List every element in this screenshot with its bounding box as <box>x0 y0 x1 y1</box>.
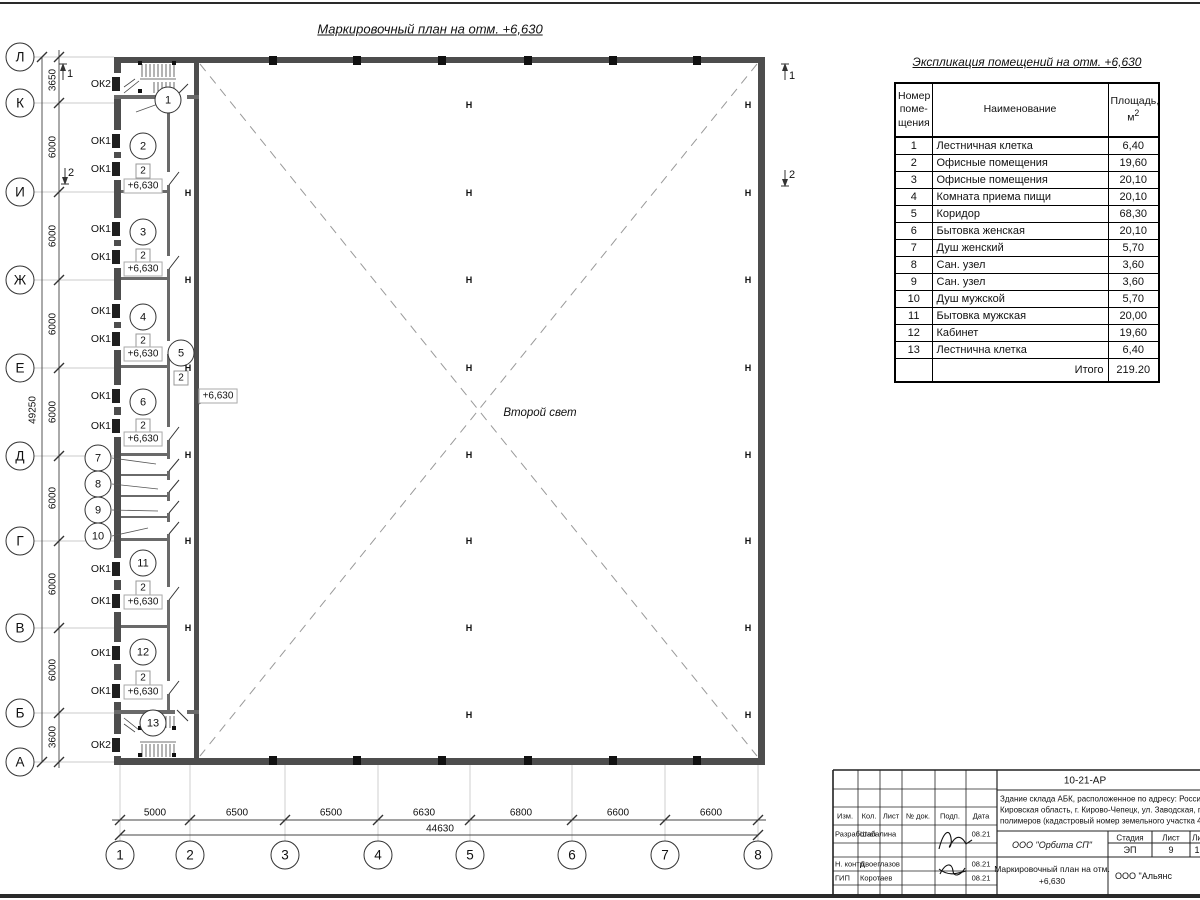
dimension-label: 3650 <box>48 69 59 91</box>
steel-column-mark: Н <box>745 536 752 546</box>
dimension-label: 6000 <box>48 487 59 509</box>
explication-body: 1 Лестничная клетка 6,40 2 Офисные помещ… <box>895 137 1159 359</box>
axis-bubble-left: А <box>6 748 35 777</box>
room-number-bubble: 2 <box>130 133 157 160</box>
sheets-value: 1 <box>1194 845 1199 855</box>
explication-header-row: Номерпоме-щения Наименование Площадь,м2 <box>895 83 1159 137</box>
address-line: полимеров (кадастровый номер земельного … <box>1000 817 1200 826</box>
axis-bubble-left: Ж <box>6 266 35 295</box>
door-openings <box>166 172 171 694</box>
room-area-cell: 3,60 <box>1108 274 1159 291</box>
explication-row: 11 Бытовка мужская 20,00 <box>895 308 1159 325</box>
axis-bubble-left: К <box>6 89 35 118</box>
axis-bubble-left: Е <box>6 354 35 383</box>
room-number-cell: 8 <box>895 257 932 274</box>
dimension-label: 6000 <box>48 136 59 158</box>
axis-bubble-left: Б <box>6 699 35 728</box>
header-area: Площадь,м2 <box>1108 83 1159 137</box>
room-number-cell: 3 <box>895 172 932 189</box>
dimension-label: 6000 <box>48 659 59 681</box>
person-role: ГИП <box>835 874 850 883</box>
room-name-cell: Офисные помещения <box>932 172 1108 189</box>
window-label: ОК2 <box>91 78 111 90</box>
section-mark-number: 2 <box>68 167 74 179</box>
person-date: 08.21 <box>966 830 996 839</box>
explication-row: 10 Душ мужской 5,70 <box>895 291 1159 308</box>
plan-title: Маркировочный план на отм. +6,630 <box>317 22 542 37</box>
leader-lines <box>112 104 212 536</box>
header-name: Наименование <box>932 83 1108 137</box>
room-area-cell: 19,60 <box>1108 155 1159 172</box>
total-value: 219.20 <box>1108 359 1159 383</box>
axis-bubble-left: Л <box>6 43 35 72</box>
explication-row: 3 Офисные помещения 20,10 <box>895 172 1159 189</box>
steel-column-mark: Н <box>466 710 473 720</box>
window-label: ОК1 <box>91 305 111 317</box>
room-number-cell: 13 <box>895 342 932 359</box>
sheets-label: Ли <box>1192 834 1200 843</box>
steel-column-mark: Н <box>466 450 473 460</box>
explication-row: 2 Офисные помещения 19,60 <box>895 155 1159 172</box>
axis-bubble-bottom: 5 <box>456 841 485 870</box>
axis-bubble-bottom: 2 <box>176 841 205 870</box>
room-name-cell: Офисные помещения <box>932 155 1108 172</box>
room-number-cell: 11 <box>895 308 932 325</box>
sheet-label: Лист <box>1162 834 1179 843</box>
room-number-bubble: 4 <box>130 304 157 331</box>
dimension-label: 6800 <box>510 808 532 819</box>
steel-column-mark: Н <box>466 188 473 198</box>
room-name-cell: Бытовка женская <box>932 223 1108 240</box>
stamp-column-header: Кол. <box>862 812 877 821</box>
room-name-cell: Бытовка мужская <box>932 308 1108 325</box>
window-label: ОК1 <box>91 647 111 659</box>
axis-bubble-bottom: 3 <box>271 841 300 870</box>
client-org: ООО "Альянс <box>1115 871 1172 881</box>
person-date: 08.21 <box>966 860 996 869</box>
person-name: Шабалина <box>860 830 896 839</box>
floor-type-marker: 2 <box>136 164 151 179</box>
axis-bubble-bottom: 6 <box>558 841 587 870</box>
room-number-bubble: 8 <box>85 471 112 498</box>
axis-bubble-bottom: 8 <box>744 841 773 870</box>
window-label: ОК1 <box>91 163 111 175</box>
window-label: ОК1 <box>91 390 111 402</box>
explication-row: 1 Лестничная клетка 6,40 <box>895 137 1159 155</box>
address-line: Кировская область, г. Кирово-Чепецк, ул.… <box>1000 806 1200 815</box>
axis-bubble-left: Г <box>6 527 35 556</box>
stamp-column-header: № док. <box>906 812 930 821</box>
room-area-cell: 5,70 <box>1108 291 1159 308</box>
explication-row: 7 Душ женский 5,70 <box>895 240 1159 257</box>
room-number-cell: 2 <box>895 155 932 172</box>
window-label: ОК1 <box>91 685 111 697</box>
room-number-bubble: 7 <box>85 445 112 472</box>
stage-value: ЭП <box>1124 845 1137 855</box>
void-diagonals <box>200 64 757 756</box>
explication-row: 9 Сан. узел 3,60 <box>895 274 1159 291</box>
room-number-cell: 10 <box>895 291 932 308</box>
dimension-label: 6500 <box>320 808 342 819</box>
steel-column-mark: Н <box>745 710 752 720</box>
room-name-cell: Кабинет <box>932 325 1108 342</box>
steel-column-mark: Н <box>745 623 752 633</box>
total-label: Итого <box>932 359 1108 383</box>
explication-row: 13 Лестнична клетка 6,40 <box>895 342 1159 359</box>
window-openings <box>112 73 122 756</box>
explication-row: 5 Коридор 68,30 <box>895 206 1159 223</box>
room-area-cell: 5,70 <box>1108 240 1159 257</box>
window-label: ОК1 <box>91 420 111 432</box>
elevation-label: +6,630 <box>124 179 163 194</box>
room-area-cell: 6,40 <box>1108 342 1159 359</box>
room-number-bubble: 13 <box>140 710 167 737</box>
room-name-cell: Лестнична клетка <box>932 342 1108 359</box>
section-mark-number: 2 <box>789 169 795 181</box>
section-mark-number: 1 <box>67 68 73 80</box>
room-number-bubble: 9 <box>85 497 112 524</box>
elevation-label: +6,630 <box>124 685 163 700</box>
room-number-cell: 9 <box>895 274 932 291</box>
room-area-cell: 20,10 <box>1108 189 1159 206</box>
dimension-label: 6600 <box>607 808 629 819</box>
stamp-column-header: Дата <box>973 812 990 821</box>
dimension-label: 6000 <box>48 573 59 595</box>
axis-bubble-bottom: 7 <box>651 841 680 870</box>
room-number-cell: 6 <box>895 223 932 240</box>
room-name-cell: Душ женский <box>932 240 1108 257</box>
room-number-cell: 12 <box>895 325 932 342</box>
steel-column-mark: Н <box>185 450 192 460</box>
signature-scribbles <box>939 832 972 875</box>
explication-row: 8 Сан. узел 3,60 <box>895 257 1159 274</box>
room-number-bubble: 6 <box>130 389 157 416</box>
room-number-bubble: 12 <box>130 639 157 666</box>
address-line: Здание склада АБК, расположенное по адре… <box>1000 795 1200 804</box>
elevation-label: +6,630 <box>124 595 163 610</box>
elevation-label: +6,630 <box>199 389 238 404</box>
steel-column-mark: Н <box>745 450 752 460</box>
explication-table: Номерпоме-щения Наименование Площадь,м2 … <box>894 82 1160 383</box>
wall-column-squares <box>269 56 701 765</box>
axis-bubble-bottom: 1 <box>106 841 135 870</box>
window-label: ОК2 <box>91 739 111 751</box>
design-org: ООО "Орбита СП" <box>1012 840 1092 850</box>
room-name-cell: Комната приема пищи <box>932 189 1108 206</box>
room-number-bubble: 3 <box>130 219 157 246</box>
room-name-cell: Сан. узел <box>932 257 1108 274</box>
floor-type-marker: 2 <box>136 581 151 596</box>
axis-bubble-left: Д <box>6 442 35 471</box>
sheet-value: 9 <box>1168 845 1173 855</box>
window-label: ОК1 <box>91 563 111 575</box>
room-number-cell: 1 <box>895 137 932 155</box>
room-name-cell: Сан. узел <box>932 274 1108 291</box>
room-area-cell: 6,40 <box>1108 137 1159 155</box>
person-name: Коротаев <box>860 874 892 883</box>
second-light-label: Второй свет <box>503 407 576 419</box>
axis-bubble-bottom: 4 <box>364 841 393 870</box>
steel-column-mark: Н <box>466 536 473 546</box>
stamp-column-header: Лист <box>883 812 899 821</box>
dimension-label: 6630 <box>413 808 435 819</box>
outer-walls <box>114 57 765 765</box>
room-number-cell: 7 <box>895 240 932 257</box>
elevation-label: +6,630 <box>124 347 163 362</box>
room-name-cell: Лестничная клетка <box>932 137 1108 155</box>
window-label: ОК1 <box>91 333 111 345</box>
dimension-label: 5000 <box>144 808 166 819</box>
room-area-cell: 20,00 <box>1108 308 1159 325</box>
room-name-cell: Душ мужской <box>932 291 1108 308</box>
dimension-label: 6000 <box>48 401 59 423</box>
steel-column-mark: Н <box>185 623 192 633</box>
room-area-cell: 20,10 <box>1108 223 1159 240</box>
dimension-label: 3600 <box>48 726 59 748</box>
window-label: ОК1 <box>91 251 111 263</box>
room-number-cell: 5 <box>895 206 932 223</box>
plan-name-line2: +6,630 <box>1039 876 1065 886</box>
window-label: ОК1 <box>91 223 111 235</box>
window-label: ОК1 <box>91 595 111 607</box>
axis-bubble-left: В <box>6 614 35 643</box>
room-area-cell: 20,10 <box>1108 172 1159 189</box>
steel-column-mark: Н <box>745 100 752 110</box>
floor-type-marker: 2 <box>136 671 151 686</box>
elevation-label: +6,630 <box>124 262 163 277</box>
steel-column-mark: Н <box>466 623 473 633</box>
section-mark-icons <box>59 63 789 187</box>
stamp-column-header: Подп. <box>940 812 960 821</box>
room-name-cell: Коридор <box>932 206 1108 223</box>
room-number-cell: 4 <box>895 189 932 206</box>
person-name: Двоеглазов <box>860 860 900 869</box>
header-room-number: Номерпоме-щения <box>895 83 932 137</box>
dimension-label: 6000 <box>48 225 59 247</box>
steel-column-mark: Н <box>185 275 192 285</box>
room-area-cell: 19,60 <box>1108 325 1159 342</box>
person-date: 08.21 <box>966 874 996 883</box>
dimension-total-bottom: 44630 <box>426 824 454 835</box>
dimension-label: 6500 <box>226 808 248 819</box>
steel-column-mark: Н <box>745 363 752 373</box>
steel-column-mark: Н <box>466 275 473 285</box>
section-mark-number: 1 <box>789 70 795 82</box>
plan-name-line1: Маркировочный план на отм. <box>994 864 1110 874</box>
explication-title: Экспликация помещений на отм. +6,630 <box>913 55 1142 69</box>
explication-row: 6 Бытовка женская 20,10 <box>895 223 1159 240</box>
stage-label: Стадия <box>1116 834 1143 843</box>
steel-column-mark: Н <box>745 188 752 198</box>
window-label: ОК1 <box>91 135 111 147</box>
steel-column-mark: Н <box>466 100 473 110</box>
explication-row: 12 Кабинет 19,60 <box>895 325 1159 342</box>
steel-column-mark: Н <box>466 363 473 373</box>
dimension-total-left: 49250 <box>28 396 39 424</box>
room-number-bubble: 1 <box>155 87 182 114</box>
steel-column-mark: Н <box>745 275 752 285</box>
elevation-label: +6,630 <box>124 432 163 447</box>
steel-column-mark: Н <box>185 363 192 373</box>
dimension-label: 6000 <box>48 313 59 335</box>
room-number-bubble: 10 <box>85 523 112 550</box>
stamp-column-header: Изм. <box>837 812 853 821</box>
dimension-label: 6600 <box>700 808 722 819</box>
explication-total-row: Итого 219.20 <box>895 359 1159 383</box>
document-number: 10-21-АР <box>1064 776 1106 787</box>
steel-column-mark: Н <box>185 536 192 546</box>
drawing-sheet: Маркировочный план на отм. +6,630 Экспли… <box>0 0 1200 900</box>
steel-column-mark: Н <box>185 188 192 198</box>
explication-row: 4 Комната приема пищи 20,10 <box>895 189 1159 206</box>
room-number-bubble: 11 <box>130 550 157 577</box>
room-area-cell: 68,30 <box>1108 206 1159 223</box>
room-area-cell: 3,60 <box>1108 257 1159 274</box>
axis-bubble-left: И <box>6 178 35 207</box>
